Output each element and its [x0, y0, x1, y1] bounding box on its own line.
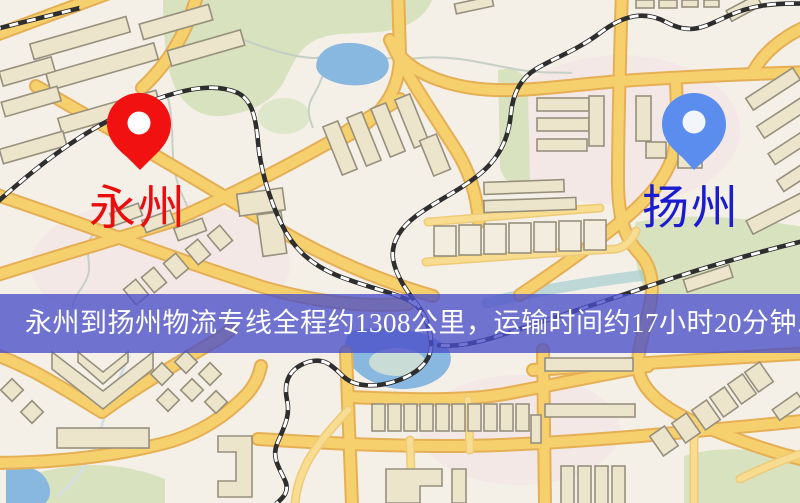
route-info-text: 永州到扬州物流专线全程约1308公里，运输时间约17小时20分钟. — [25, 308, 800, 338]
park-small — [258, 98, 310, 134]
destination-pin-hole — [683, 111, 706, 134]
route-info-banner: 永州到扬州物流专线全程约1308公里，运输时间约17小时20分钟. — [0, 294, 800, 353]
map-image: 永州 扬州 — [0, 0, 800, 503]
map-canvas[interactable]: 永州 扬州 永州到扬州物流专线全程约1308公里，运输时间约17小时20分钟. — [0, 0, 800, 503]
origin-city-label: 永州 — [89, 183, 187, 235]
origin-pin-hole — [128, 112, 151, 135]
street-block-row — [434, 220, 606, 256]
destination-city-label: 扬州 — [642, 183, 740, 235]
